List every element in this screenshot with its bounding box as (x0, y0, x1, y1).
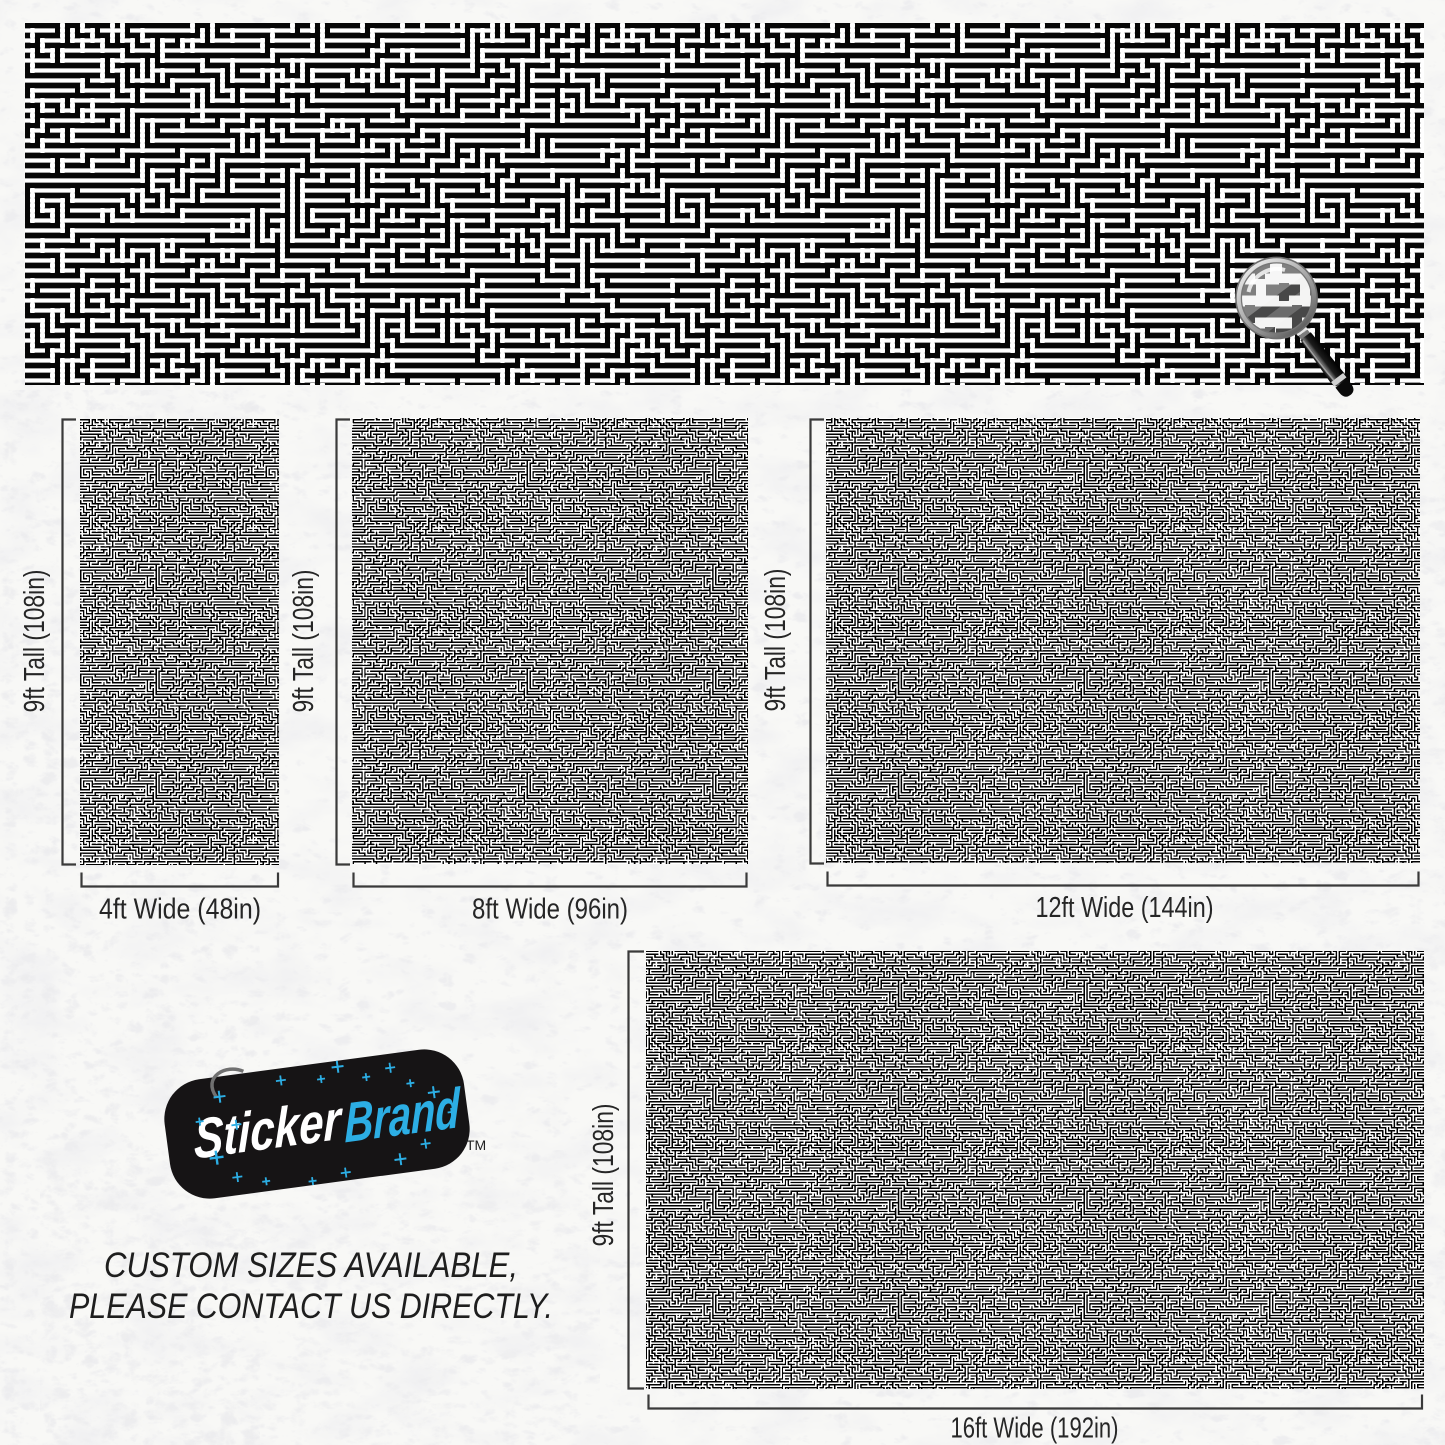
svg-text:9ft Tall (108in): 9ft Tall (108in) (588, 1104, 620, 1247)
svg-text:16ft Wide (192in): 16ft Wide (192in) (951, 1413, 1119, 1445)
svg-text:TM: TM (466, 1137, 486, 1153)
svg-text:CUSTOM SIZES AVAILABLE,: CUSTOM SIZES AVAILABLE, (104, 1246, 518, 1285)
svg-text:9ft Tall (108in): 9ft Tall (108in) (760, 569, 792, 712)
svg-text:9ft Tall (108in): 9ft Tall (108in) (19, 570, 51, 713)
svg-text:9ft Tall (108in): 9ft Tall (108in) (288, 570, 320, 713)
svg-text:PLEASE CONTACT US DIRECTLY.: PLEASE CONTACT US DIRECTLY. (69, 1287, 553, 1326)
svg-text:12ft Wide (144in): 12ft Wide (144in) (1036, 892, 1214, 924)
svg-text:8ft Wide (96in): 8ft Wide (96in) (472, 894, 628, 926)
svg-text:4ft Wide (48in): 4ft Wide (48in) (99, 894, 261, 926)
